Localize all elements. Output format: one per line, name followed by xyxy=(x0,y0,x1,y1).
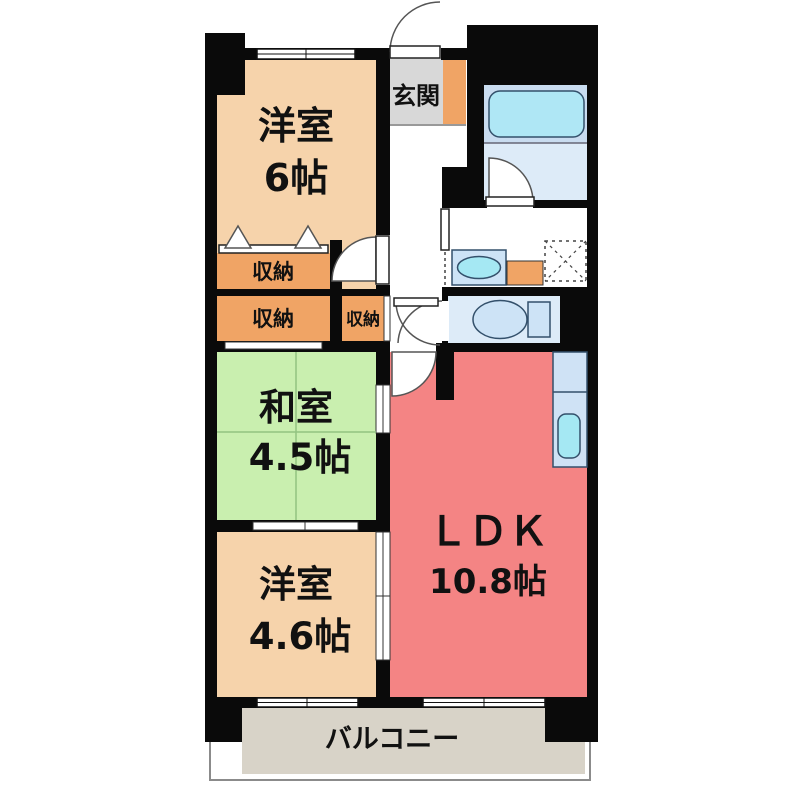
wall-segment xyxy=(376,660,390,700)
toilet-door-opening xyxy=(441,301,449,341)
wall-segment xyxy=(376,48,390,235)
kitchen-counter xyxy=(553,352,587,467)
western46-area: 4.6帖 xyxy=(249,615,352,658)
shoe-cabinet xyxy=(443,58,466,125)
storage2-label: 収納 xyxy=(252,307,294,331)
bathtub xyxy=(489,91,584,137)
wall-segment xyxy=(467,25,598,85)
floor-plan: 洋室 6帖 玄関 収納 収納 収納 和室 4.5帖 洋室 4.6帖 ＬＤＫ 10… xyxy=(0,0,800,800)
kitchen-sink xyxy=(558,414,580,458)
wall-segment xyxy=(205,95,217,697)
toilet-door xyxy=(394,298,442,345)
western6-label: 洋室 xyxy=(258,104,334,148)
western6-area: 6帖 xyxy=(264,156,328,200)
washer-pan xyxy=(545,241,586,281)
entrance-door xyxy=(390,2,440,58)
west46-ldk-partition xyxy=(376,532,390,660)
japanese-label: 和室 xyxy=(259,386,333,429)
ldk-label: ＬＤＫ xyxy=(428,509,548,555)
storage1-label: 収納 xyxy=(252,260,294,284)
wall-segment xyxy=(205,33,245,95)
wall-segment xyxy=(436,343,454,400)
floor-plan-canvas: 洋室 6帖 玄関 収納 収納 収納 和室 4.5帖 洋室 4.6帖 ＬＤＫ 10… xyxy=(0,0,800,800)
window-west46-balcony xyxy=(257,698,358,707)
toilet xyxy=(473,301,550,339)
wall-segment xyxy=(342,289,384,296)
wall-segment xyxy=(545,697,598,742)
wall-segment xyxy=(217,289,330,296)
wall-segment xyxy=(587,85,598,698)
wall-segment xyxy=(467,85,484,202)
wall-segment xyxy=(442,167,467,202)
wall-segment xyxy=(441,48,467,60)
wall-segment xyxy=(376,352,390,385)
washroom-folding-door xyxy=(441,209,449,286)
ldk-area: 10.8帖 xyxy=(429,562,547,602)
washbasin xyxy=(452,250,506,285)
japanese-area: 4.5帖 xyxy=(249,436,352,479)
wall-segment xyxy=(376,433,390,532)
entrance-label: 玄関 xyxy=(392,82,440,110)
western46-label: 洋室 xyxy=(259,563,333,606)
wall-segment xyxy=(560,287,598,352)
storage2-sliding-door xyxy=(225,342,322,349)
wall-segment xyxy=(436,343,560,352)
japanese-west46-sliding-door xyxy=(253,522,358,530)
storage3-label: 収納 xyxy=(346,309,380,330)
window-west6-top xyxy=(257,49,355,59)
balcony-label: バルコニー xyxy=(325,724,459,755)
storage3-door xyxy=(384,296,390,341)
window-ldk-balcony xyxy=(423,698,545,707)
japanese-room-sliding-door xyxy=(376,385,390,433)
washroom-cabinet xyxy=(507,261,543,285)
wall-segment xyxy=(205,697,242,742)
